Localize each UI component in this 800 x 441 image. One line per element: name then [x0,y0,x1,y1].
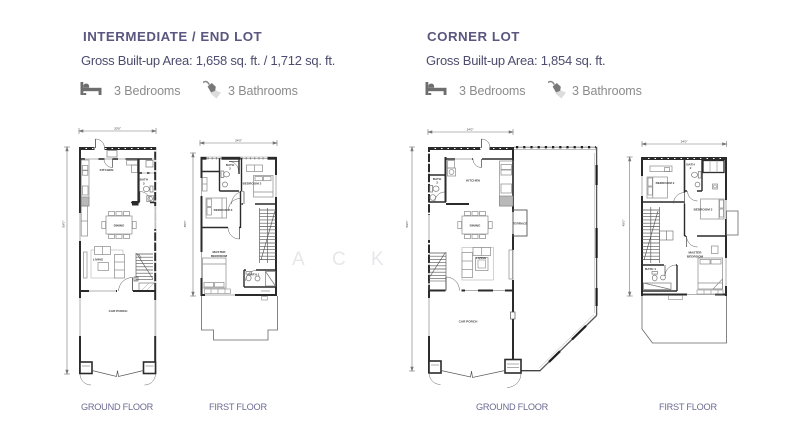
svg-text:BATH 1: BATH 1 [249,273,260,277]
svg-text:45'0": 45'0" [622,220,626,227]
svg-text:24'0": 24'0" [467,128,474,132]
svg-text:DINING: DINING [114,224,125,228]
svg-text:BEDROOM 2: BEDROOM 2 [656,181,675,185]
svg-text:3: 3 [436,181,438,185]
svg-text:24'0": 24'0" [681,140,688,144]
svg-text:45'0": 45'0" [183,221,187,228]
svg-text:BEDROOM 3: BEDROOM 3 [694,208,713,212]
svg-text:24'0": 24'0" [235,139,242,143]
svg-text:DINING: DINING [470,224,481,228]
svg-text:LIVING: LIVING [476,256,487,260]
svg-text:CAR PORCH: CAR PORCH [109,309,129,313]
svg-text:KITCHEN: KITCHEN [100,168,115,172]
svg-text:LIVING: LIVING [93,258,104,262]
svg-text:TERRACE: TERRACE [513,222,528,226]
svg-text:20'0": 20'0" [114,127,121,131]
svg-text:BEDROOM 3: BEDROOM 3 [214,208,233,212]
svg-text:BEDROOM 2: BEDROOM 2 [243,182,262,186]
svg-text:CAR PORCH: CAR PORCH [459,320,479,324]
svg-text:59'0": 59'0" [62,221,66,228]
svg-text:3: 3 [143,181,145,185]
svg-text:2: 2 [690,166,692,170]
svg-text:KITCHEN: KITCHEN [466,179,481,183]
svg-text:BATH 1: BATH 1 [645,267,656,271]
svg-text:59'0": 59'0" [405,221,409,228]
svg-text:2: 2 [229,166,231,170]
svg-text:BEDROOM: BEDROOM [211,254,228,258]
